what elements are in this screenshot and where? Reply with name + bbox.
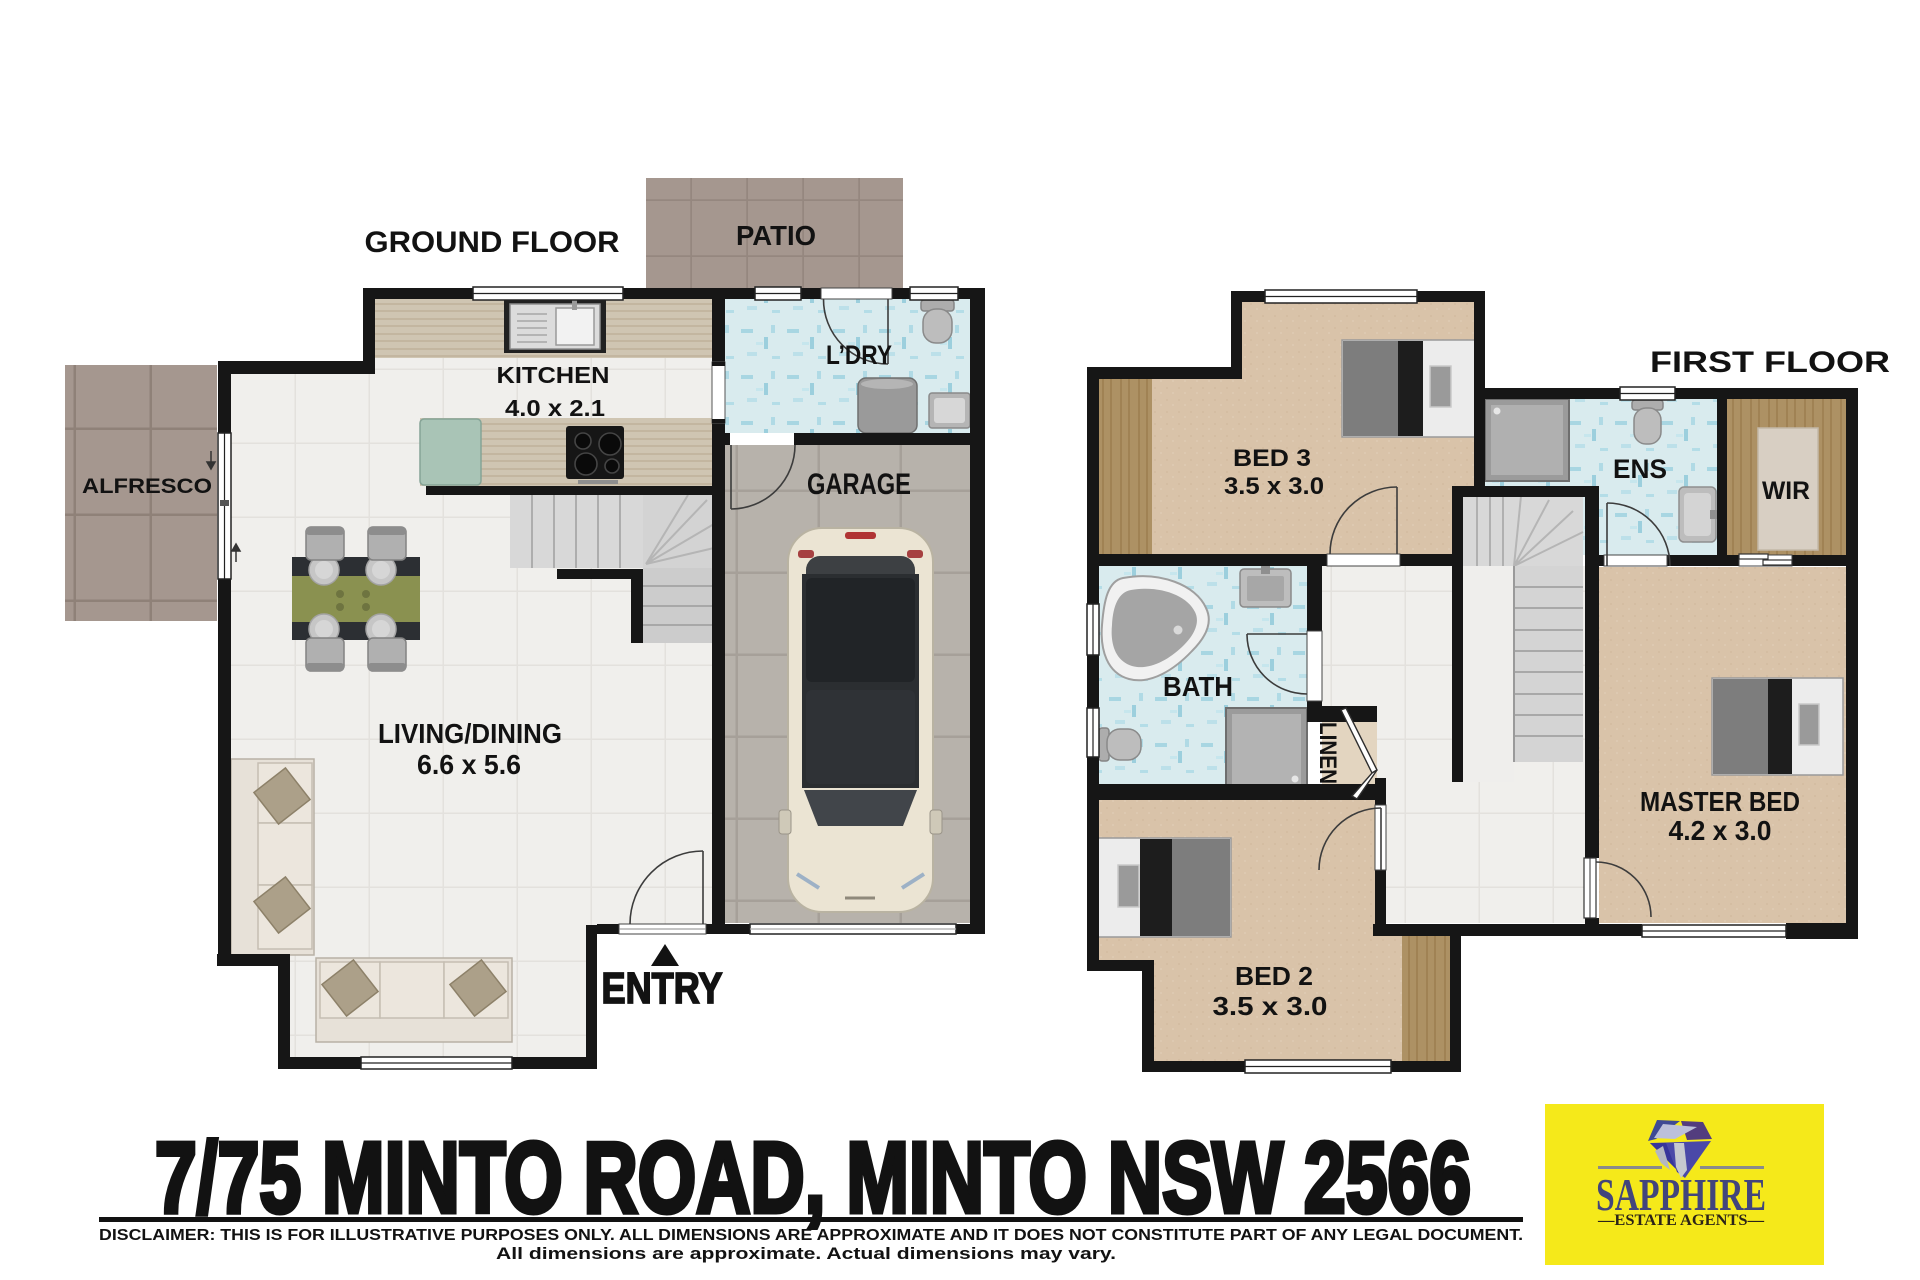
svg-text:BED 2: BED 2 [1235,961,1313,991]
svg-text:DISCLAIMER: THIS IS FOR ILLUST: DISCLAIMER: THIS IS FOR ILLUSTRATIVE PUR… [99,1227,1523,1244]
svg-text:BATH: BATH [1163,671,1233,702]
svg-text:PATIO: PATIO [736,220,816,251]
svg-text:ENS: ENS [1613,454,1667,484]
svg-text:KITCHEN: KITCHEN [497,362,610,388]
svg-text:ENTRY: ENTRY [602,964,723,1013]
svg-text:6.6 x 5.6: 6.6 x 5.6 [417,749,521,780]
svg-text:3.5 x 3.0: 3.5 x 3.0 [1213,991,1328,1021]
svg-text:LINEN: LINEN [1314,722,1341,784]
svg-text:GARAGE: GARAGE [807,468,911,501]
svg-text:4.2 x 3.0: 4.2 x 3.0 [1669,815,1772,846]
svg-text:FIRST FLOOR: FIRST FLOOR [1650,346,1890,379]
svg-text:3.5 x 3.0: 3.5 x 3.0 [1224,473,1324,500]
svg-text:GROUND FLOOR: GROUND FLOOR [365,226,620,259]
svg-text:WIR: WIR [1762,477,1810,505]
svg-text:4.0 x 2.1: 4.0 x 2.1 [505,395,605,421]
svg-text:L’DRY: L’DRY [826,340,892,370]
svg-text:MASTER BED: MASTER BED [1640,786,1800,817]
svg-text:ALFRESCO: ALFRESCO [82,475,212,498]
svg-text:—ESTATE AGENTS—: —ESTATE AGENTS— [1597,1212,1765,1229]
svg-text:BED 3: BED 3 [1233,445,1311,472]
svg-text:All dimensions are approximate: All dimensions are approximate. Actual d… [496,1244,1116,1263]
svg-text:LIVING/DINING: LIVING/DINING [378,718,562,749]
